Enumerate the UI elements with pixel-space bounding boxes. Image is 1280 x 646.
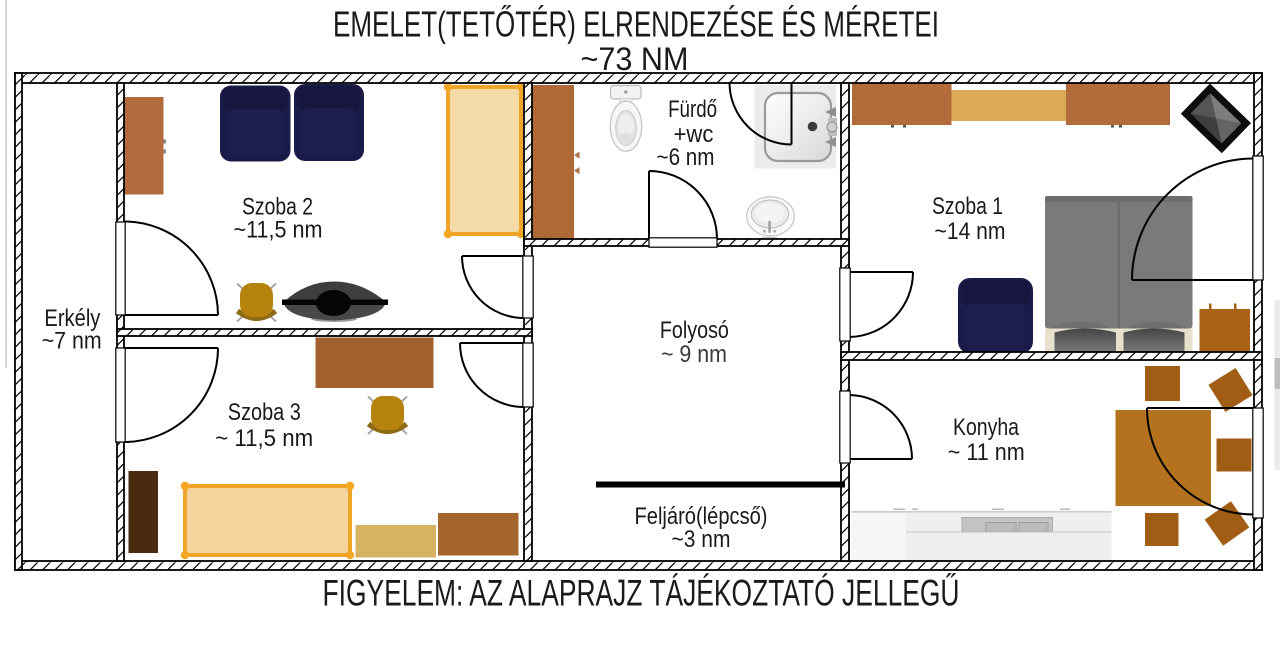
svg-text:~7 nm: ~7 nm bbox=[42, 327, 102, 354]
svg-text:Folyosó: Folyosó bbox=[660, 317, 729, 344]
svg-text:~11,5 nm: ~11,5 nm bbox=[234, 217, 323, 244]
svg-text:~3 nm: ~3 nm bbox=[672, 526, 731, 553]
svg-text:~ 11 nm: ~ 11 nm bbox=[948, 439, 1025, 466]
svg-text:Szoba 1: Szoba 1 bbox=[932, 193, 1003, 220]
svg-text:~14 nm: ~14 nm bbox=[935, 218, 1006, 245]
svg-text:~ 11,5 nm: ~ 11,5 nm bbox=[215, 425, 313, 452]
svg-text:EMELET(TETŐTÉR) ELRENDEZÉSE ÉS: EMELET(TETŐTÉR) ELRENDEZÉSE ÉS MÉRETEI bbox=[333, 4, 939, 45]
svg-text:~ 9 nm: ~ 9 nm bbox=[661, 341, 727, 368]
svg-text:FIGYELEM: AZ ALAPRAJZ TÁJÉKOZT: FIGYELEM: AZ ALAPRAJZ TÁJÉKOZTATÓ JELLEG… bbox=[323, 573, 960, 614]
svg-text:~6 nm: ~6 nm bbox=[657, 144, 715, 171]
svg-text:Szoba 3: Szoba 3 bbox=[228, 399, 301, 426]
svg-text:~73 NM: ~73 NM bbox=[581, 41, 689, 77]
svg-text:Konyha: Konyha bbox=[953, 414, 1020, 441]
svg-text:Fürdő: Fürdő bbox=[668, 96, 717, 123]
